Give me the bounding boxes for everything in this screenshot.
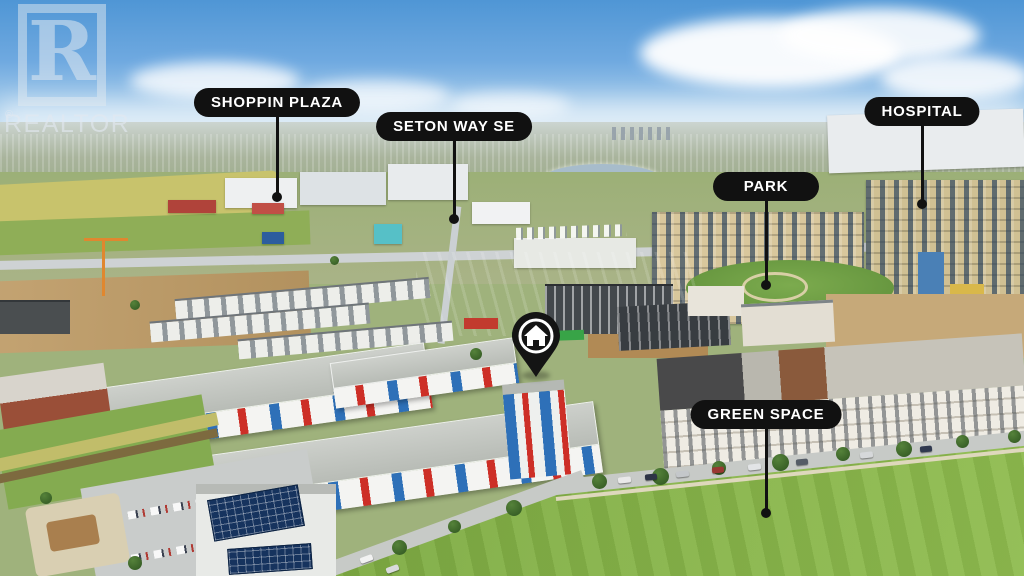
crane-arm	[84, 238, 128, 241]
dark-townhomes	[0, 300, 70, 334]
leader-dot	[917, 199, 927, 209]
label-pill: SETON WAY SE	[376, 112, 532, 141]
leader-dot	[449, 214, 459, 224]
leader-line	[453, 140, 456, 219]
leader-line	[765, 428, 768, 513]
leader-line	[921, 125, 924, 204]
label-pill: GREEN SPACE	[691, 400, 842, 429]
car	[920, 445, 933, 452]
car	[796, 458, 809, 465]
tree	[1008, 430, 1021, 443]
leader-dot	[761, 280, 771, 290]
red-roof-building	[252, 203, 284, 214]
distant-city-skyline	[612, 127, 672, 140]
leader-line	[765, 200, 768, 285]
leader-dot	[761, 508, 771, 518]
building	[741, 300, 835, 347]
park-path	[742, 272, 808, 302]
red-container	[464, 318, 498, 329]
car	[645, 473, 658, 480]
realtor-logo-r: R	[28, 11, 96, 93]
blue-building	[262, 232, 284, 244]
tree	[896, 441, 912, 457]
hospital-mural-accent	[918, 252, 944, 294]
aerial-photo: SHOPPIN PLAZA SETON WAY SE PARK HOSPITAL…	[0, 0, 1024, 576]
tree	[470, 348, 482, 360]
building	[388, 164, 468, 200]
cloud	[880, 55, 1024, 100]
realtor-logo-box: R	[18, 4, 106, 106]
registered-trademark-icon: ®	[5, 109, 15, 121]
leader-dot	[272, 192, 282, 202]
building	[472, 202, 530, 224]
red-roof-building	[168, 200, 216, 213]
subject-property-building	[502, 379, 572, 479]
tree	[592, 474, 607, 489]
tree	[772, 454, 789, 471]
realtor-logo-text: REALTOR ®	[4, 110, 144, 122]
label-pill: SHOPPIN PLAZA	[194, 88, 360, 117]
crane-mast	[102, 238, 105, 296]
leader-line	[276, 116, 279, 197]
tree	[128, 556, 142, 570]
house-icon	[510, 311, 562, 378]
building	[300, 172, 386, 205]
property-location-pin	[510, 311, 562, 378]
label-pill: PARK	[713, 172, 819, 201]
label-pill: HOSPITAL	[864, 97, 979, 126]
building	[688, 286, 744, 316]
tree	[40, 492, 52, 504]
tree	[130, 300, 140, 310]
realtor-watermark: R REALTOR ®	[4, 4, 144, 122]
realtor-wordmark: REALTOR	[4, 110, 130, 139]
car	[712, 466, 725, 473]
tree	[506, 500, 522, 516]
tree	[330, 256, 339, 265]
tree	[836, 447, 850, 461]
tree	[956, 435, 969, 448]
tree	[392, 540, 407, 555]
tree	[448, 520, 461, 533]
teal-building	[374, 224, 402, 244]
